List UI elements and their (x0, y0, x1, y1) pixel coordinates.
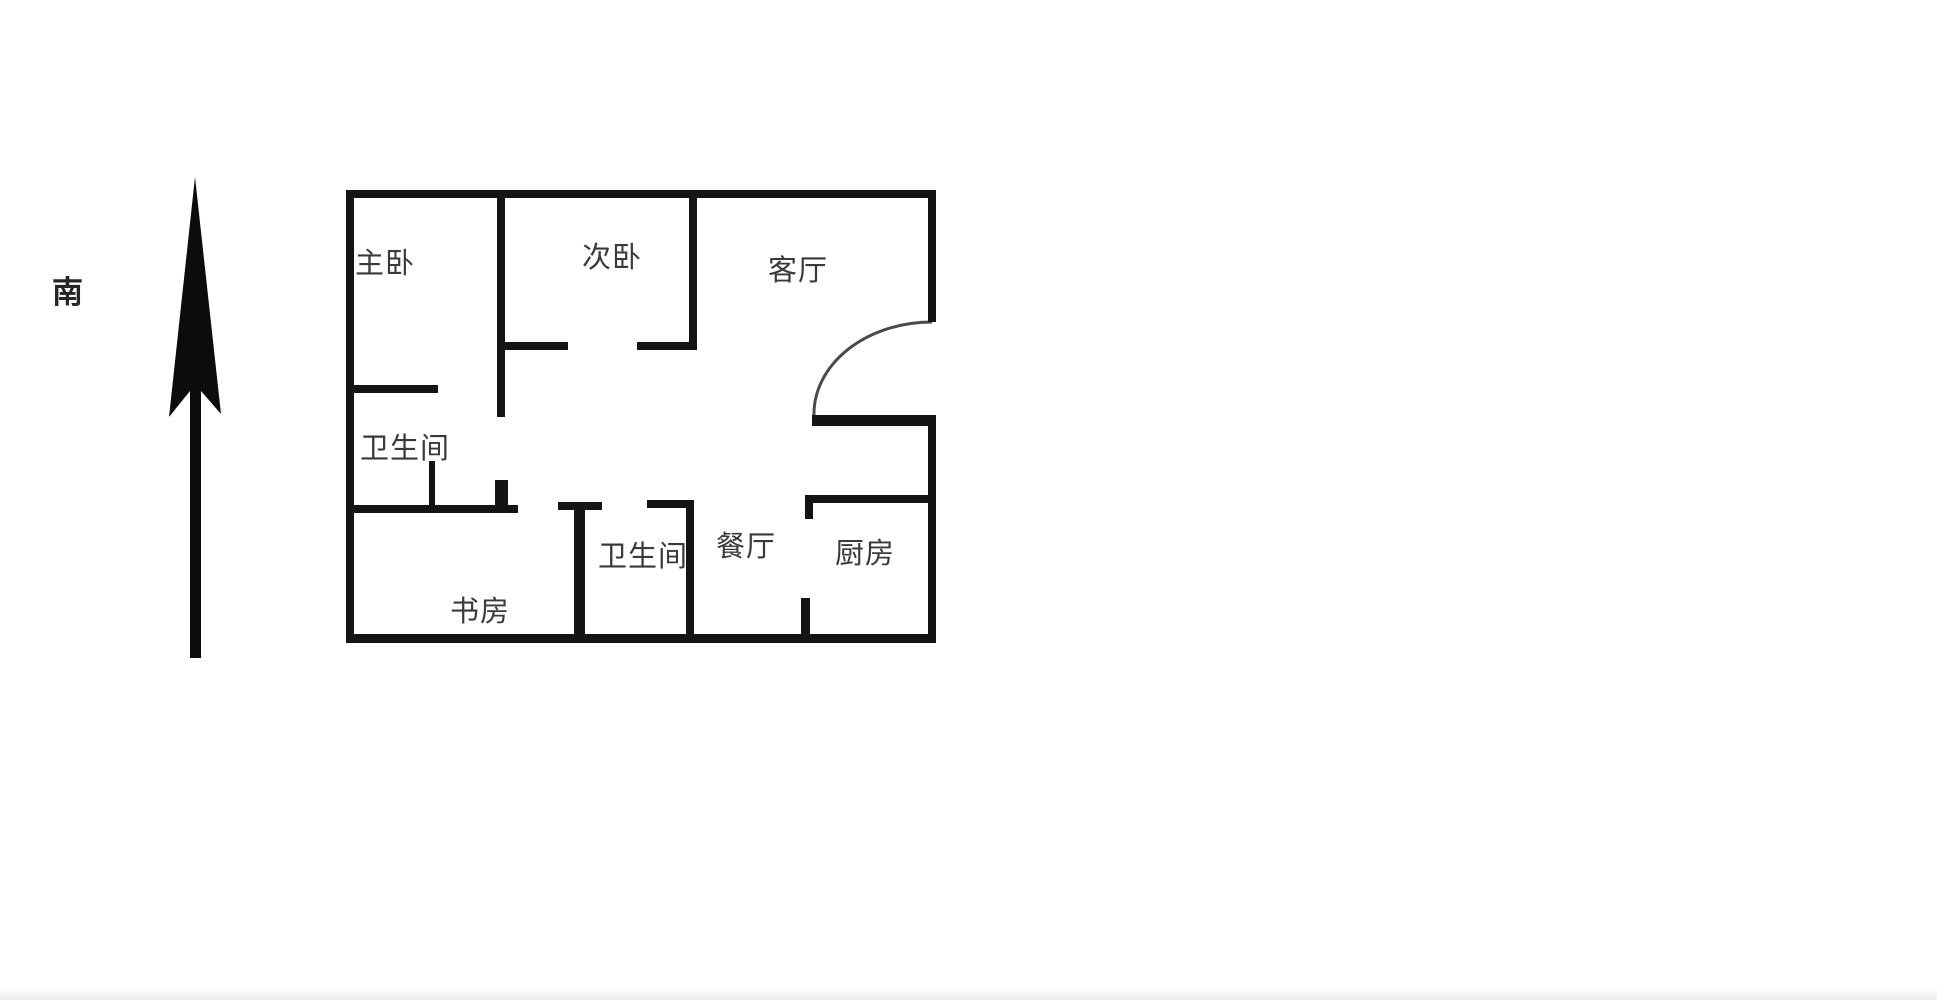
wall-bedroom2-right (689, 190, 697, 350)
wall-study-door-jamb (495, 480, 508, 507)
bottom-edge-shade (0, 986, 1937, 1000)
wall-bedroom2-bottom-right (637, 342, 697, 350)
room-label-dining-room: 餐厅 (716, 532, 776, 562)
room-label-study: 书房 (450, 597, 510, 627)
wall-bath1-door-line (429, 461, 435, 507)
wall-bath2-left (574, 502, 585, 634)
wall-bath2-top-left (558, 502, 602, 510)
room-label-living-room: 客厅 (768, 256, 828, 286)
north-south-arrow-icon (169, 177, 221, 658)
wall-kitchen-top (805, 495, 936, 503)
room-label-second-bedroom: 次卧 (582, 243, 642, 273)
wall-bedroom2-bottom-left (497, 342, 568, 350)
floorplan-overlay (0, 0, 1937, 1000)
wall-outer-top (346, 190, 936, 198)
wall-outer-right-lower (928, 417, 936, 643)
wall-study-top (346, 505, 518, 513)
wall-master-bottom (346, 385, 438, 393)
room-label-bathroom-2: 卫生间 (598, 542, 688, 572)
room-label-kitchen: 厨房 (835, 539, 895, 569)
south-direction-label: 南 (52, 277, 83, 308)
wall-bedroom-divider (497, 190, 505, 417)
wall-kitchen-top-stub (805, 495, 813, 519)
wall-kitchen-door-stub (801, 598, 810, 636)
wall-outer-right-upper (928, 190, 936, 322)
room-label-bathroom-1: 卫生间 (360, 434, 450, 464)
wall-outer-bottom (346, 634, 936, 643)
entry-door-swing-arc (814, 322, 932, 415)
floorplan-canvas: 南 主卧次卧客厅卫生间卫生间餐厅厨房书房 (0, 0, 1937, 1000)
wall-entry-hall (812, 415, 936, 426)
wall-outer-left (346, 190, 354, 643)
room-label-master-bedroom: 主卧 (355, 249, 415, 279)
